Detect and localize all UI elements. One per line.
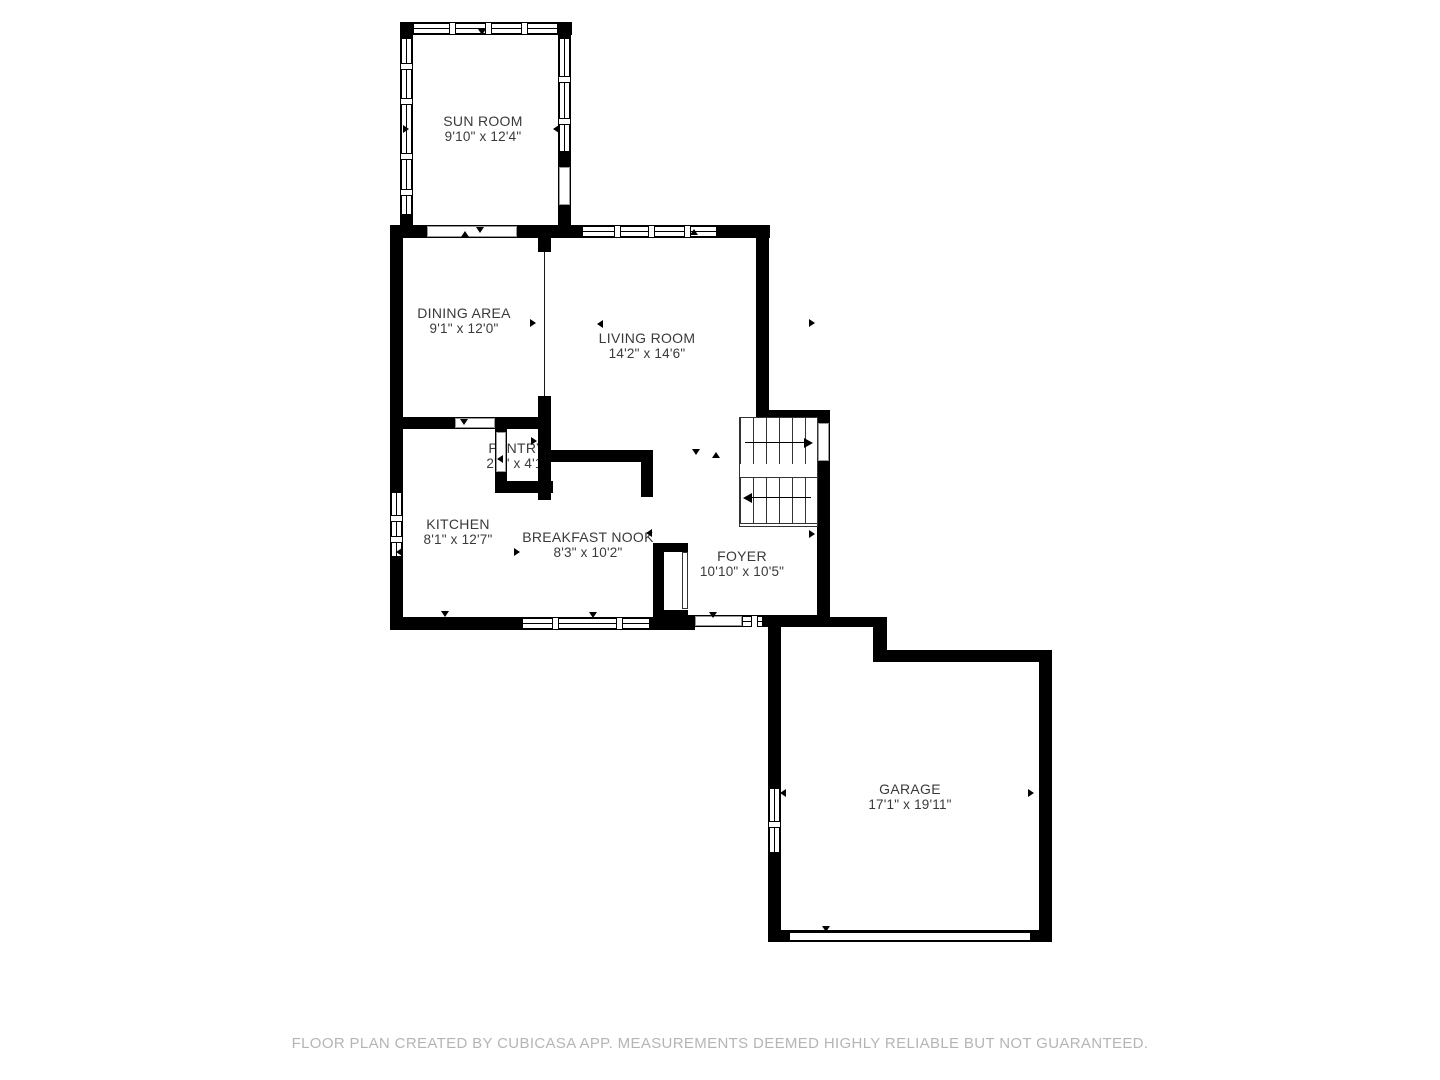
door-swing-marker-icon (478, 29, 486, 35)
room-dimensions: 10'10" x 10'5" (700, 564, 784, 580)
room-label-garage: GARAGE 17'1" x 19'11" (868, 781, 951, 813)
window-symbol (522, 618, 650, 629)
door-swing-marker-icon (597, 320, 603, 328)
door-swing-marker-icon (780, 789, 786, 797)
door-swing-marker-icon (589, 612, 597, 618)
door-swing-marker-icon (712, 452, 720, 458)
stair-arrow-icon (804, 438, 813, 448)
door-opening (496, 432, 506, 472)
room-label-kitchen: KITCHEN 8'1" x 12'7" (424, 516, 493, 548)
room-label-living-room: LIVING ROOM 14'2" x 14'6" (599, 330, 696, 362)
door-opening (695, 616, 742, 626)
wall-segment (1039, 650, 1052, 942)
window-symbol (559, 38, 570, 152)
window-symbol (742, 616, 763, 627)
floor-plan: SUN ROOM 9'10" x 12'4" DINING AREA 9'1" … (0, 0, 1440, 1080)
door-swing-marker-icon (823, 620, 831, 626)
room-dimensions: 8'3" x 10'2" (522, 545, 654, 561)
wall-segment (641, 450, 653, 497)
door-swing-marker-icon (476, 227, 484, 233)
wall-segment (653, 543, 688, 552)
window-symbol (769, 788, 780, 853)
room-label-foyer: FOYER 10'10" x 10'5" (700, 548, 784, 580)
stair-arrow-line (751, 497, 811, 498)
room-dimensions: 9'10" x 12'4" (443, 129, 522, 145)
door-swing-marker-icon (690, 229, 698, 235)
staircase (739, 417, 818, 527)
room-dimensions: 17'1" x 19'11" (868, 797, 951, 813)
door-swing-marker-icon (809, 319, 815, 327)
wall-segment (756, 225, 769, 415)
stair-landing (740, 464, 817, 478)
room-name: LIVING ROOM (599, 330, 696, 346)
room-dimensions: 8'1" x 12'7" (424, 532, 493, 548)
wall-segment (873, 650, 1052, 662)
door-opening (427, 226, 517, 237)
door-swing-marker-icon (497, 455, 503, 463)
door-swing-marker-icon (809, 530, 815, 538)
room-name: SUN ROOM (443, 113, 522, 129)
door-swing-marker-icon (461, 231, 469, 237)
room-dimensions: 9'1" x 12'0" (417, 321, 511, 337)
room-dimensions: 14'2" x 14'6" (599, 346, 696, 362)
door-swing-marker-icon (460, 419, 468, 425)
door-swing-marker-icon (709, 612, 717, 618)
room-name: KITCHEN (424, 516, 493, 532)
room-label-dining-area: DINING AREA 9'1" x 12'0" (417, 305, 511, 337)
footer-disclaimer: FLOOR PLAN CREATED BY CUBICASA APP. MEAS… (0, 1035, 1440, 1052)
door-swing-marker-icon (395, 316, 401, 324)
door-swing-marker-icon (531, 437, 537, 445)
door-swing-marker-icon (1028, 789, 1034, 797)
stair-arrow-icon (743, 493, 752, 503)
room-name: FOYER (700, 548, 784, 564)
closet-opening (682, 552, 688, 609)
door-swing-marker-icon (514, 548, 520, 556)
door-swing-marker-icon (646, 529, 652, 537)
door-opening (559, 167, 570, 205)
room-name: GARAGE (868, 781, 951, 797)
door-opening (818, 423, 829, 461)
door-swing-marker-icon (396, 548, 402, 556)
door-swing-marker-icon (692, 449, 700, 455)
door-swing-marker-icon (403, 125, 409, 133)
door-swing-marker-icon (441, 611, 449, 617)
room-name: BREAKFAST NOOK (522, 529, 654, 545)
stair-arrow-line (745, 442, 805, 443)
cased-opening (538, 252, 551, 396)
door-swing-marker-icon (588, 453, 596, 459)
room-label-sun-room: SUN ROOM 9'10" x 12'4" (443, 113, 522, 145)
door-swing-marker-icon (553, 125, 559, 133)
garage-door-symbol (790, 932, 1030, 941)
room-label-breakfast-nook: BREAKFAST NOOK 8'3" x 10'2" (522, 529, 654, 561)
door-swing-marker-icon (822, 926, 830, 932)
wall-segment (768, 617, 781, 942)
wall-segment (653, 543, 664, 620)
wall-segment (538, 238, 551, 252)
room-name: DINING AREA (417, 305, 511, 321)
door-swing-marker-icon (530, 319, 536, 327)
wall-segment (495, 481, 553, 493)
